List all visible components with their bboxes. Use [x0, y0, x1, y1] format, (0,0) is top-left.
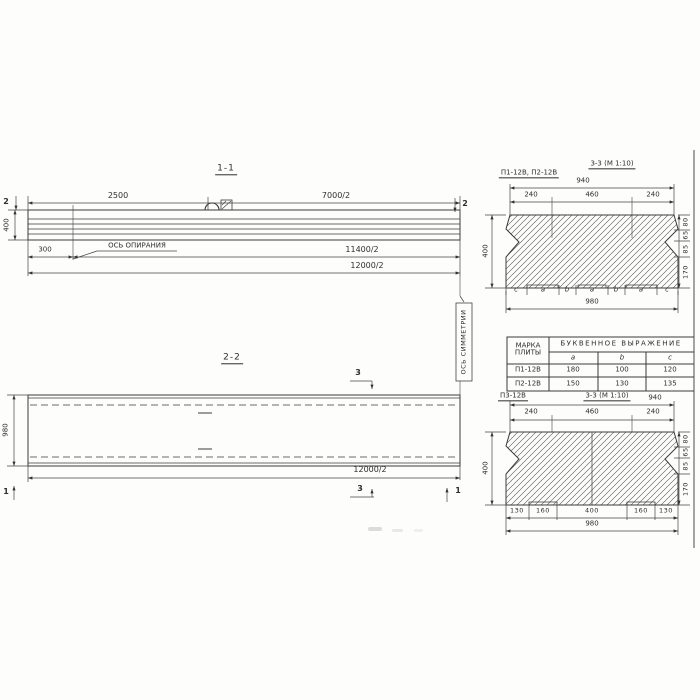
dim-160-right: 160 — [634, 508, 648, 515]
section-3-3-bottom-title: 3-3 (М 1:10) — [583, 392, 630, 401]
table-row1-a: 180 — [566, 366, 579, 373]
section-1-1-title: 1-1 — [215, 164, 237, 175]
table-row1-mark: П1-12В — [515, 366, 541, 373]
dim-400-bottom-section: 400 — [482, 461, 489, 474]
section-3-3-top-subtitle: П1-12В, П2-12В — [499, 169, 559, 178]
letter-c-1: c — [514, 286, 518, 293]
dim-130-left: 130 — [510, 508, 524, 515]
dim-12000-2-top: 12000/2 — [350, 262, 383, 270]
section-2-2-view — [28, 395, 460, 466]
symmetry-axis-label: ОСЬ СИММЕТРИИ — [461, 309, 468, 374]
dim-980-bottom-section: 980 — [585, 520, 598, 527]
dim-240-left-top: 240 — [524, 191, 537, 198]
letter-a-1: a — [541, 286, 545, 293]
dim-160-left: 160 — [536, 508, 550, 515]
letter-b-1: b — [565, 286, 569, 293]
cut-mark-3-top: 3 — [355, 369, 361, 377]
scan-artifact — [414, 529, 423, 532]
bearing-axis-label: ОСЬ ОПИРАНИЯ — [108, 242, 166, 249]
section-1-1-dims — [8, 196, 460, 276]
table-row1-c: 120 — [663, 366, 676, 373]
dim-65-bottom: 65 — [683, 447, 690, 456]
letter-a-3: a — [639, 286, 643, 293]
dim-2500: 2500 — [108, 192, 128, 200]
dim-300: 300 — [38, 246, 51, 253]
section-3-3-bottom-block — [506, 415, 678, 505]
dim-7000-2: 7000/2 — [322, 192, 350, 200]
section-1-1-view — [28, 200, 460, 240]
cut-mark-1-right: 1 — [455, 487, 461, 495]
table-header-group: БУКВЕННОЕ ВЫРАЖЕНИЕ — [560, 340, 681, 347]
section-3-3-bottom-subtitle: П3-12В — [498, 392, 528, 401]
dim-460-top: 460 — [585, 191, 598, 198]
scan-artifact — [368, 527, 382, 531]
drawing-sheet: 1-1 2 2 2500 7000/2 400 300 ОСЬ ОПИРАНИЯ… — [0, 0, 700, 700]
letter-a-2: a — [590, 286, 594, 293]
dim-460-bottom: 460 — [585, 408, 598, 415]
section-2-2-title: 2-2 — [221, 353, 243, 364]
table-row2-c: 135 — [663, 380, 676, 387]
dim-400-center: 400 — [585, 508, 599, 515]
table-col-c: c — [668, 354, 672, 361]
section-3-3-top-block — [506, 197, 678, 288]
scan-artifact — [392, 529, 403, 532]
dim-height-980: 980 — [2, 423, 9, 436]
dim-11400-2: 11400/2 — [345, 246, 378, 254]
dim-170-top: 170 — [683, 265, 690, 279]
table-header-marka: МАРКА ПЛИТЫ — [508, 343, 548, 358]
dim-80-bottom: 80 — [683, 434, 690, 443]
section-2-2-dims — [7, 276, 472, 502]
cut-mark-2-left: 2 — [3, 198, 9, 206]
table-row2-b: 130 — [615, 380, 628, 387]
dim-400-top-section: 400 — [482, 244, 489, 257]
dim-240-left-bottom: 240 — [524, 408, 537, 415]
dim-85-bottom: 85 — [683, 461, 690, 470]
section-3-3-top-title: 3-3 (М 1:10) — [588, 160, 635, 169]
dim-940-top: 940 — [576, 177, 589, 184]
cut-mark-3-bottom: 3 — [357, 485, 363, 493]
table-row2-a: 150 — [566, 380, 579, 387]
letter-b-2: b — [614, 286, 618, 293]
cut-mark-1-left: 1 — [3, 488, 9, 496]
table-col-a: a — [571, 354, 575, 361]
table-row2-mark: П2-12В — [515, 380, 541, 387]
dim-85-top: 85 — [683, 244, 690, 253]
dim-12000-2-bottom: 12000/2 — [353, 466, 386, 474]
dim-240-right-bottom: 240 — [646, 408, 659, 415]
dim-65-top: 65 — [683, 230, 690, 239]
drawing-linework — [0, 0, 700, 700]
dim-130-right: 130 — [659, 508, 673, 515]
table-row1-b: 100 — [615, 366, 628, 373]
letter-c-2: c — [665, 286, 669, 293]
dim-240-right-top: 240 — [646, 191, 659, 198]
cut-mark-2-right: 2 — [462, 200, 468, 208]
dim-80-top: 80 — [683, 217, 690, 226]
dim-940-bottom: 940 — [648, 394, 661, 401]
lifting-loop — [205, 203, 219, 210]
table-col-b: b — [620, 354, 624, 361]
dim-980-top-section: 980 — [585, 298, 598, 305]
dim-170-bottom: 170 — [683, 482, 690, 496]
dim-height-400: 400 — [3, 218, 10, 231]
